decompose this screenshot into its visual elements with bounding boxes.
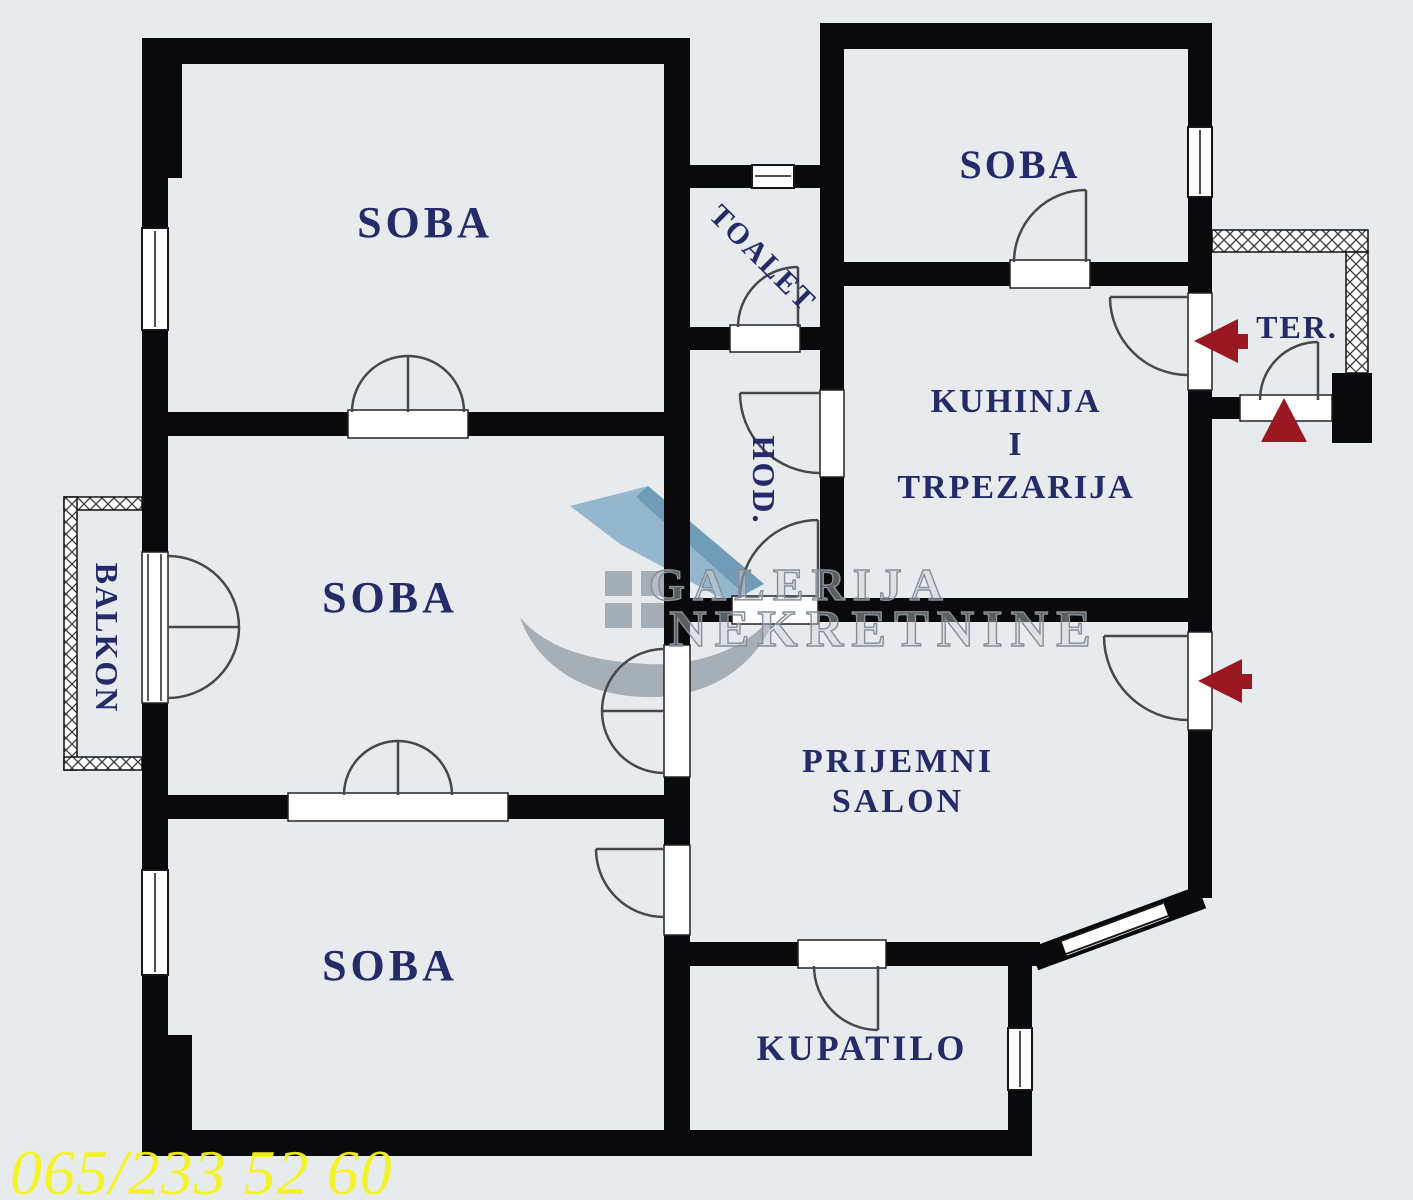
label-kuhinja-line1: KUHINJA bbox=[931, 383, 1102, 420]
balkon-border-bottom bbox=[64, 757, 142, 770]
label-salon-line1: PRIJEMNI bbox=[802, 743, 994, 780]
balkon-border-left bbox=[64, 497, 77, 770]
label-terasa: TER. bbox=[1256, 309, 1338, 345]
arrow-kitchen-terrace-tail bbox=[1238, 334, 1248, 349]
floor-plan-canvas: SOBA SOBA SOBA SOBA TOALET HOD. KUHINJA … bbox=[0, 0, 1413, 1200]
label-soba-top-right: SOBA bbox=[960, 142, 1081, 187]
label-salon-line2: SALON bbox=[832, 783, 964, 820]
terrace-border-right bbox=[1346, 252, 1368, 373]
label-kuhinja-line2: I bbox=[1008, 426, 1023, 463]
phone-number: 065/233 52 60 bbox=[10, 1137, 393, 1200]
label-balkon: BALKON bbox=[89, 563, 125, 714]
label-kuhinja-line3: TRPEZARIJA bbox=[897, 469, 1134, 506]
label-kupatilo: KUPATILO bbox=[757, 1028, 968, 1068]
terrace-border-top bbox=[1212, 230, 1368, 252]
label-soba-top-left: SOBA bbox=[357, 198, 493, 247]
arrow-salon-entrance-tail bbox=[1242, 674, 1252, 689]
floor-plan-page: SOBA SOBA SOBA SOBA TOALET HOD. KUHINJA … bbox=[0, 0, 1413, 1200]
label-soba-bottom: SOBA bbox=[322, 941, 458, 990]
label-hodnik: HOD. bbox=[746, 436, 782, 525]
label-soba-middle: SOBA bbox=[322, 573, 458, 622]
watermark-line2: NEKRETNINE bbox=[669, 601, 1099, 658]
